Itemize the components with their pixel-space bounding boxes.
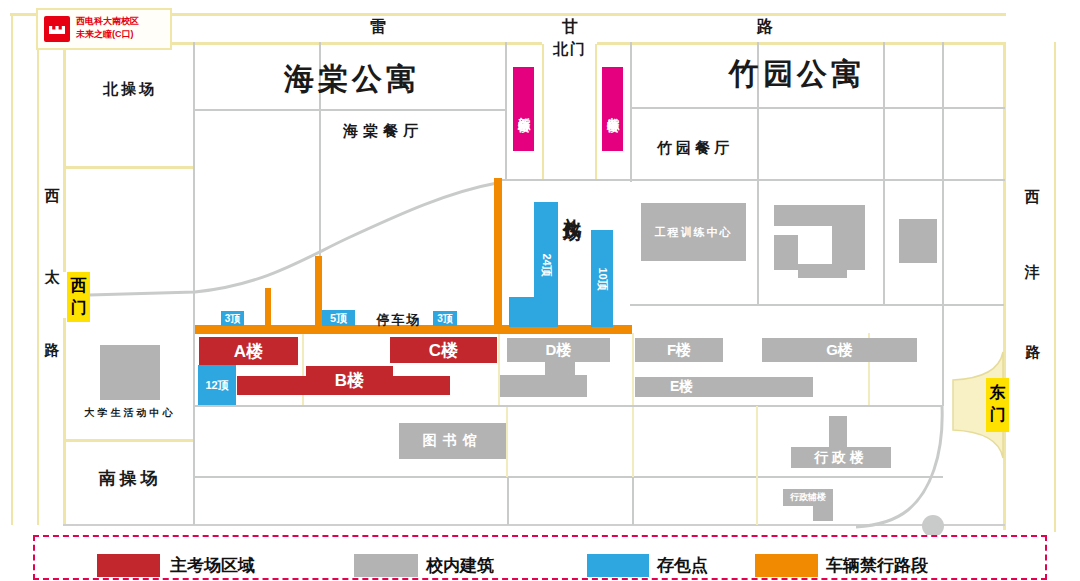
building-b: B楼: [306, 366, 393, 395]
forbidden-road-stub-2: [315, 256, 322, 326]
west-gate-badge: 西门: [67, 272, 90, 322]
building-d-wing: [500, 375, 587, 397]
legend-swatch-storage: [587, 554, 649, 577]
west-road-char-tai: 太: [45, 268, 60, 287]
parking-label: 停车场: [377, 311, 422, 329]
haitang-canteen-label: 海棠餐厅: [343, 122, 423, 141]
small-square-building: [899, 219, 937, 263]
forbidden-road-stub-1: [265, 288, 271, 326]
legend-label-storage: 存包点: [657, 554, 708, 577]
library-building: 图书馆: [399, 423, 506, 459]
north-gate-label: 北门: [553, 40, 587, 59]
legend-swatch-exam: [97, 554, 160, 577]
haitang-apartment-label: 海棠公寓: [284, 59, 420, 100]
c-shaped-building: [774, 205, 832, 226]
east-gate-badge: 东门: [986, 378, 1009, 432]
storage-point-3a: 3顶: [221, 311, 244, 326]
new-complex-building: 新综合楼: [513, 67, 534, 151]
ceremony-square-label: 礼仪广场: [560, 203, 584, 358]
legend-swatch-building: [354, 554, 418, 577]
north-field-label: 北操场: [103, 80, 157, 99]
logo-mark: [44, 16, 70, 42]
storage-point-24-label: 24顶: [539, 253, 554, 276]
forbidden-road-vertical: [494, 178, 502, 326]
building-e: E楼: [635, 377, 813, 397]
east-road-char-feng: 沣: [1025, 263, 1040, 282]
building-g: G楼: [762, 338, 917, 362]
storage-point-3b: 3顶: [433, 311, 457, 326]
south-field-label: 南操场: [99, 467, 162, 490]
admin-annex-building: 行政辅楼: [783, 489, 833, 506]
legend-swatch-forbidden: [755, 554, 818, 577]
storage-point-10-label: 10顶: [595, 267, 610, 290]
storage-point-24-foot: [509, 297, 535, 327]
west-road-char-lu: 路: [45, 341, 60, 360]
legend-label-exam: 主考场区域: [170, 554, 255, 577]
storage-point-5: 5顶: [322, 310, 355, 326]
building-c: C楼: [390, 337, 497, 363]
east-road-char-xi: 西: [1025, 188, 1040, 207]
building-f: F楼: [635, 338, 723, 362]
east-road-char-lu: 路: [1026, 343, 1041, 362]
legend-bar: 主考场区域 校内建筑 存包点 车辆禁行路段: [33, 535, 1047, 580]
legend-label-forbidden: 车辆禁行路段: [826, 554, 928, 577]
admin-building: 行政楼: [791, 447, 891, 468]
top-road-char-lu: 路: [757, 17, 773, 38]
storage-point-12: 12顶: [198, 365, 236, 405]
student-center-building: [100, 345, 160, 400]
logo-line2: 未来之瞳(C口): [76, 28, 134, 41]
zhuyuan-canteen-label: 竹园餐厅: [657, 139, 733, 158]
student-center-label: 大学生活动中心: [85, 406, 176, 420]
building-d-wing: [545, 362, 575, 375]
engineering-training-center: 工程训练中心: [641, 203, 746, 261]
campus-logo: 西电科大南校区 未来之瞳(C口): [36, 8, 172, 50]
admin-annex-foot: [813, 506, 833, 521]
c-shaped-building: [798, 264, 847, 278]
old-complex-building: 老综合楼: [602, 67, 623, 151]
zhuyuan-apartment-label: 竹园公寓: [729, 54, 865, 95]
battlement-icon: [44, 16, 70, 42]
west-gate-curved-road: [89, 183, 497, 295]
top-road-char-gan: 甘: [562, 17, 578, 38]
roundabout-circle: [922, 515, 944, 537]
c-shaped-building: [774, 235, 798, 270]
logo-line1: 西电科大南校区: [76, 15, 139, 28]
admin-building-stem: [829, 416, 847, 447]
building-a: A楼: [199, 337, 298, 365]
legend-label-building: 校内建筑: [426, 554, 494, 577]
building-d: D楼: [507, 338, 610, 362]
west-road-char-xi: 西: [45, 187, 60, 206]
c-shaped-building: [832, 205, 865, 270]
top-road-char-lei: 雷: [370, 17, 386, 38]
campus-map: 工程训练中心 D楼 F楼 G楼 E楼 图书馆 行政楼 行政辅楼 A楼 C楼 B楼…: [0, 0, 1080, 581]
